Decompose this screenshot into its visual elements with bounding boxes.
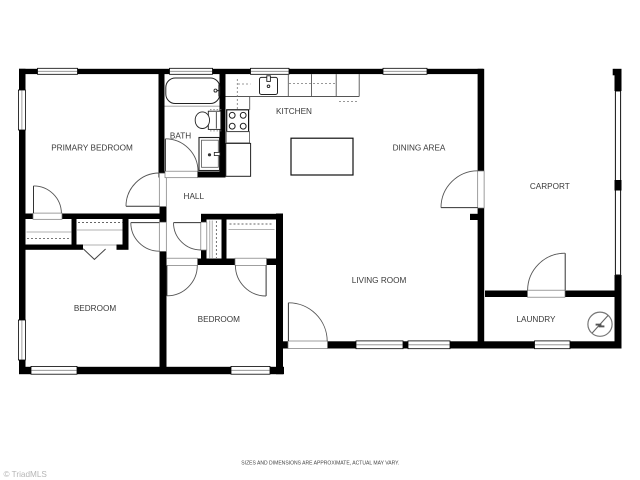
- svg-text:BEDROOM: BEDROOM: [198, 315, 240, 324]
- svg-text:LIVING ROOM: LIVING ROOM: [352, 276, 407, 285]
- svg-text:CARPORT: CARPORT: [530, 182, 570, 191]
- svg-text:BATH: BATH: [170, 131, 191, 140]
- svg-text:PRIMARY BEDROOM: PRIMARY BEDROOM: [51, 143, 133, 152]
- svg-text:HALL: HALL: [184, 192, 205, 201]
- svg-text:SIZES AND DIMENSIONS ARE APPRO: SIZES AND DIMENSIONS ARE APPROXIMATE, AC…: [241, 460, 399, 466]
- svg-text:LAUNDRY: LAUNDRY: [517, 315, 557, 324]
- svg-text:DINING AREA: DINING AREA: [393, 143, 446, 152]
- svg-text:BEDROOM: BEDROOM: [74, 304, 116, 313]
- svg-text:KITCHEN: KITCHEN: [276, 107, 312, 116]
- svg-text:© TriadMLS: © TriadMLS: [4, 470, 48, 479]
